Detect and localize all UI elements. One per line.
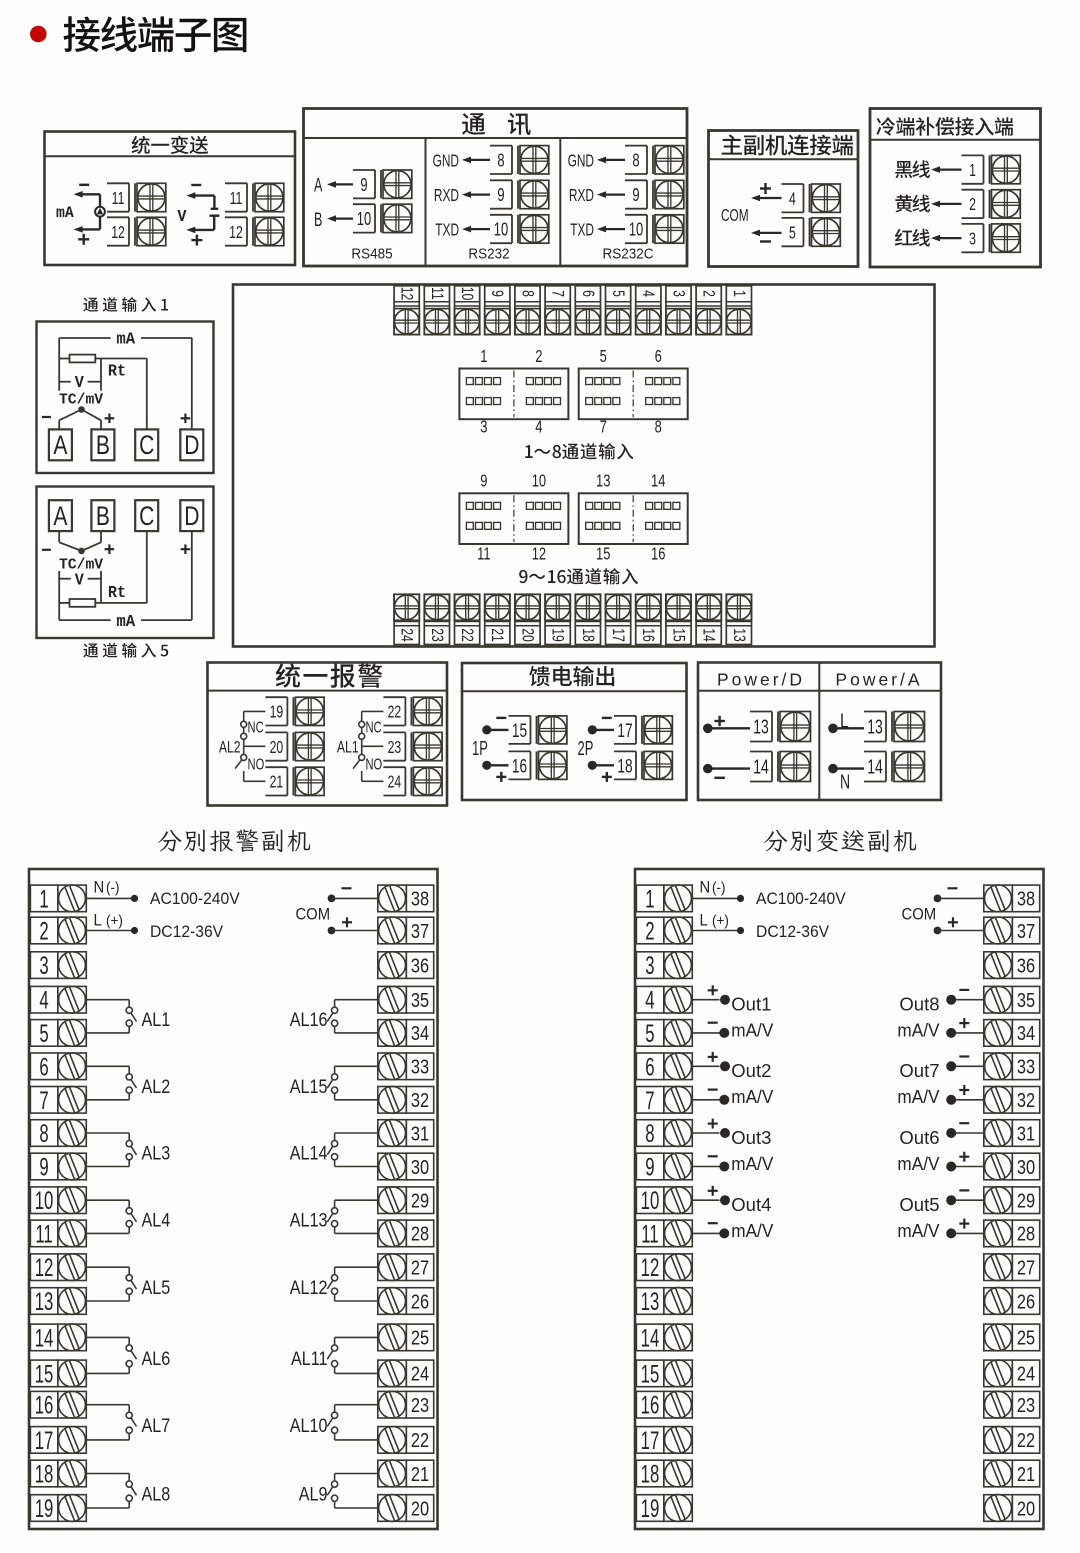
svg-text:27: 27 xyxy=(411,1256,429,1279)
svg-text:9: 9 xyxy=(39,1153,48,1181)
svg-text:NO: NO xyxy=(365,756,382,773)
svg-text:RXD: RXD xyxy=(434,186,459,206)
svg-text:Out8: Out8 xyxy=(899,994,939,1015)
svg-text:5: 5 xyxy=(608,290,626,297)
svg-text:15: 15 xyxy=(641,1360,660,1388)
svg-text:mA/V: mA/V xyxy=(731,1220,773,1241)
svg-text:4: 4 xyxy=(39,986,48,1014)
svg-text:33: 33 xyxy=(1017,1055,1035,1078)
svg-text:21: 21 xyxy=(411,1462,429,1485)
svg-text:1: 1 xyxy=(729,290,747,297)
svg-text:1: 1 xyxy=(39,885,48,913)
svg-text:RS485: RS485 xyxy=(351,246,392,263)
svg-text:mA/V: mA/V xyxy=(731,1153,773,1174)
svg-text:2P: 2P xyxy=(578,737,594,760)
svg-text:36: 36 xyxy=(1017,954,1035,977)
svg-text:TXD: TXD xyxy=(435,220,459,240)
svg-text:20: 20 xyxy=(1017,1497,1035,1520)
svg-text:B: B xyxy=(96,431,110,461)
svg-text:17: 17 xyxy=(617,720,632,742)
svg-text:(-): (-) xyxy=(106,880,119,897)
svg-text:6: 6 xyxy=(655,347,662,367)
svg-text:AL6: AL6 xyxy=(142,1348,171,1370)
svg-text:8: 8 xyxy=(518,290,536,297)
svg-text:7: 7 xyxy=(645,1086,654,1114)
svg-text:13: 13 xyxy=(596,472,611,492)
svg-text:16: 16 xyxy=(639,628,657,642)
svg-text:10: 10 xyxy=(35,1187,54,1215)
svg-text:5: 5 xyxy=(789,223,796,243)
svg-text:33: 33 xyxy=(411,1055,429,1078)
svg-text:9: 9 xyxy=(645,1153,654,1181)
svg-text:14: 14 xyxy=(651,472,666,492)
svg-text:mA: mA xyxy=(56,203,74,222)
svg-text:15: 15 xyxy=(596,545,611,565)
svg-text:7: 7 xyxy=(548,290,566,297)
svg-text:V: V xyxy=(75,373,85,392)
svg-text:DC12-36V: DC12-36V xyxy=(150,923,223,941)
svg-text:21: 21 xyxy=(1017,1462,1035,1485)
svg-text:A: A xyxy=(314,175,323,196)
svg-text:13: 13 xyxy=(641,1288,660,1316)
svg-text:GND: GND xyxy=(433,151,459,171)
svg-text:Out7: Out7 xyxy=(899,1060,939,1081)
svg-text:25: 25 xyxy=(411,1326,429,1349)
svg-text:24: 24 xyxy=(1017,1362,1035,1385)
svg-text:AL14: AL14 xyxy=(290,1142,328,1164)
svg-text:17: 17 xyxy=(641,1427,660,1455)
svg-text:13: 13 xyxy=(729,628,747,642)
svg-text:5: 5 xyxy=(600,347,607,367)
svg-text:7: 7 xyxy=(600,417,607,437)
svg-text:mA/V: mA/V xyxy=(897,1220,939,1241)
svg-text:AL7: AL7 xyxy=(142,1415,171,1437)
svg-text:AC100-240V: AC100-240V xyxy=(756,889,846,907)
svg-text:AL13: AL13 xyxy=(290,1209,328,1231)
svg-text:Rt: Rt xyxy=(108,362,126,381)
svg-text:14: 14 xyxy=(753,755,769,778)
svg-text:6: 6 xyxy=(578,290,596,297)
svg-text:1: 1 xyxy=(645,885,654,913)
svg-text:11: 11 xyxy=(427,287,445,300)
svg-text:AL9: AL9 xyxy=(299,1483,328,1505)
svg-text:32: 32 xyxy=(411,1089,429,1112)
svg-text:2: 2 xyxy=(969,195,976,215)
svg-text:19: 19 xyxy=(35,1495,54,1523)
svg-text:18: 18 xyxy=(617,755,632,777)
svg-text:A: A xyxy=(53,431,68,461)
svg-text:14: 14 xyxy=(641,1324,660,1352)
svg-text:26: 26 xyxy=(411,1290,429,1313)
svg-text:Out3: Out3 xyxy=(731,1127,771,1148)
svg-text:TC/mV: TC/mV xyxy=(59,392,103,408)
svg-text:COM: COM xyxy=(721,206,749,226)
svg-text:10: 10 xyxy=(532,472,547,492)
svg-text:38: 38 xyxy=(411,887,429,910)
svg-text:23: 23 xyxy=(388,738,402,758)
svg-text:Out2: Out2 xyxy=(731,1060,771,1081)
svg-text:4: 4 xyxy=(789,189,796,209)
svg-text:COM: COM xyxy=(902,906,937,924)
svg-text:AL3: AL3 xyxy=(142,1142,171,1164)
svg-text:D: D xyxy=(184,501,199,531)
svg-text:6: 6 xyxy=(39,1053,48,1081)
svg-text:3: 3 xyxy=(645,952,654,980)
svg-text:L: L xyxy=(94,912,103,930)
svg-text:AL5: AL5 xyxy=(142,1277,171,1299)
svg-text:19: 19 xyxy=(641,1495,660,1523)
svg-text:20: 20 xyxy=(518,628,536,642)
svg-text:22: 22 xyxy=(1017,1429,1035,1452)
svg-text:8: 8 xyxy=(632,151,639,171)
svg-text:12: 12 xyxy=(229,223,243,243)
svg-text:8: 8 xyxy=(655,417,662,437)
svg-text:RXD: RXD xyxy=(569,186,594,206)
svg-text:20: 20 xyxy=(270,738,284,758)
svg-text:13: 13 xyxy=(35,1288,54,1316)
svg-text:14: 14 xyxy=(35,1324,54,1352)
svg-text:N: N xyxy=(840,770,850,793)
svg-text:16: 16 xyxy=(35,1391,54,1419)
svg-text:B: B xyxy=(314,209,322,230)
svg-text:2: 2 xyxy=(535,347,542,367)
svg-text:28: 28 xyxy=(411,1222,429,1245)
svg-text:(+): (+) xyxy=(712,913,729,930)
svg-text:14: 14 xyxy=(867,755,883,778)
svg-text:V: V xyxy=(177,207,187,226)
svg-text:14: 14 xyxy=(699,628,717,642)
svg-text:10: 10 xyxy=(629,221,643,241)
svg-text:12: 12 xyxy=(111,223,125,243)
svg-text:mA: mA xyxy=(116,611,135,631)
svg-text:1: 1 xyxy=(969,161,976,181)
svg-text:mA/V: mA/V xyxy=(897,1153,939,1174)
svg-text:mA/V: mA/V xyxy=(731,1020,773,1041)
svg-text:11: 11 xyxy=(641,1220,658,1248)
svg-text:2: 2 xyxy=(645,917,654,945)
svg-text:D: D xyxy=(184,431,199,461)
svg-text:23: 23 xyxy=(1017,1393,1035,1416)
svg-text:AL8: AL8 xyxy=(142,1483,171,1505)
svg-text:25: 25 xyxy=(1017,1326,1035,1349)
svg-text:8: 8 xyxy=(645,1120,654,1148)
svg-text:16: 16 xyxy=(651,545,666,565)
svg-text:NO: NO xyxy=(248,756,265,773)
svg-text:22: 22 xyxy=(411,1429,429,1452)
svg-text:3: 3 xyxy=(39,952,48,980)
svg-text:Out1: Out1 xyxy=(731,994,771,1015)
svg-text:Rt: Rt xyxy=(108,583,126,602)
svg-text:31: 31 xyxy=(1017,1122,1035,1145)
svg-text:34: 34 xyxy=(1017,1022,1035,1045)
svg-text:5: 5 xyxy=(645,1020,654,1048)
svg-text:18: 18 xyxy=(641,1460,660,1488)
svg-text:Out4: Out4 xyxy=(731,1194,771,1215)
svg-text:10: 10 xyxy=(457,287,475,301)
svg-text:AL2: AL2 xyxy=(142,1076,171,1098)
svg-text:12: 12 xyxy=(532,545,546,565)
svg-text:TXD: TXD xyxy=(570,220,594,240)
svg-text:2: 2 xyxy=(699,290,717,297)
svg-text:30: 30 xyxy=(411,1155,429,1178)
svg-text:12: 12 xyxy=(397,287,415,301)
svg-text:18: 18 xyxy=(35,1460,54,1488)
svg-text:22: 22 xyxy=(457,628,475,642)
svg-text:11: 11 xyxy=(112,189,125,209)
svg-text:32: 32 xyxy=(1017,1089,1035,1112)
svg-text:8: 8 xyxy=(497,151,504,171)
svg-text:C: C xyxy=(139,431,154,461)
svg-text:AL12: AL12 xyxy=(290,1277,328,1299)
svg-text:1P: 1P xyxy=(472,737,488,760)
svg-text:34: 34 xyxy=(411,1022,429,1045)
svg-text:16: 16 xyxy=(641,1391,660,1419)
svg-text:13: 13 xyxy=(753,715,769,738)
svg-text:29: 29 xyxy=(1017,1189,1035,1212)
svg-text:35: 35 xyxy=(1017,988,1035,1011)
svg-text:mA/V: mA/V xyxy=(897,1087,939,1108)
svg-text:RS232: RS232 xyxy=(468,246,509,263)
svg-text:Power/D: Power/D xyxy=(717,669,805,689)
svg-text:AL1: AL1 xyxy=(337,739,359,757)
svg-text:11: 11 xyxy=(477,545,490,565)
svg-text:mA/V: mA/V xyxy=(897,1020,939,1041)
svg-text:13: 13 xyxy=(867,715,883,738)
svg-text:(+): (+) xyxy=(106,913,123,930)
svg-text:19: 19 xyxy=(548,628,566,642)
svg-text:AL2: AL2 xyxy=(219,739,241,757)
svg-text:9: 9 xyxy=(480,472,487,492)
svg-text:3: 3 xyxy=(969,229,976,249)
svg-text:AL10: AL10 xyxy=(290,1415,328,1437)
svg-text:37: 37 xyxy=(411,919,429,942)
svg-text:27: 27 xyxy=(1017,1256,1035,1279)
svg-text:24: 24 xyxy=(411,1362,429,1385)
svg-text:30: 30 xyxy=(1017,1155,1035,1178)
svg-text:2: 2 xyxy=(39,917,48,945)
svg-text:AL16: AL16 xyxy=(290,1009,328,1031)
svg-text:37: 37 xyxy=(1017,919,1035,942)
svg-text:12: 12 xyxy=(641,1254,660,1282)
svg-text:23: 23 xyxy=(411,1393,429,1416)
svg-text:L: L xyxy=(699,912,708,930)
svg-text:mA/V: mA/V xyxy=(731,1087,773,1108)
svg-text:4: 4 xyxy=(645,986,654,1014)
svg-text:18: 18 xyxy=(578,628,596,642)
svg-text:9: 9 xyxy=(360,176,367,196)
svg-text:AL11: AL11 xyxy=(291,1348,328,1370)
svg-text:AL1: AL1 xyxy=(142,1009,171,1031)
svg-text:N: N xyxy=(699,879,710,897)
svg-text:16: 16 xyxy=(512,755,527,777)
svg-text:N: N xyxy=(94,879,105,897)
svg-text:NC: NC xyxy=(365,719,381,736)
svg-text:B: B xyxy=(96,501,110,531)
svg-text:11: 11 xyxy=(35,1220,52,1248)
svg-text:31: 31 xyxy=(411,1122,429,1145)
svg-text:28: 28 xyxy=(1017,1222,1035,1245)
svg-text:COM: COM xyxy=(295,906,330,924)
svg-text:24: 24 xyxy=(388,773,402,793)
svg-text:20: 20 xyxy=(411,1497,429,1520)
svg-text:4: 4 xyxy=(639,290,657,297)
svg-text:AC100-240V: AC100-240V xyxy=(150,889,240,907)
svg-text:NC: NC xyxy=(248,719,264,736)
svg-text:10: 10 xyxy=(641,1187,660,1215)
svg-text:C: C xyxy=(139,501,154,531)
svg-text:29: 29 xyxy=(411,1189,429,1212)
svg-text:36: 36 xyxy=(411,954,429,977)
svg-text:21: 21 xyxy=(488,628,506,642)
svg-text:RS232C: RS232C xyxy=(603,246,654,263)
svg-text:(-): (-) xyxy=(712,880,725,897)
svg-text:17: 17 xyxy=(35,1427,54,1455)
svg-text:9: 9 xyxy=(488,290,506,297)
svg-text:AL15: AL15 xyxy=(290,1076,328,1098)
svg-text:35: 35 xyxy=(411,988,429,1011)
svg-text:22: 22 xyxy=(388,703,402,723)
svg-text:24: 24 xyxy=(397,628,415,642)
svg-text:12: 12 xyxy=(35,1254,54,1282)
svg-text:38: 38 xyxy=(1017,887,1035,910)
svg-text:17: 17 xyxy=(608,628,626,642)
svg-text:15: 15 xyxy=(669,628,687,642)
svg-text:3: 3 xyxy=(480,417,487,437)
svg-text:21: 21 xyxy=(270,773,284,793)
svg-text:7: 7 xyxy=(39,1086,48,1114)
svg-text:3: 3 xyxy=(669,290,687,297)
svg-text:6: 6 xyxy=(645,1053,654,1081)
svg-text:15: 15 xyxy=(512,720,527,742)
svg-text:GND: GND xyxy=(568,151,594,171)
svg-text:4: 4 xyxy=(535,417,542,437)
svg-text:10: 10 xyxy=(494,221,508,241)
svg-text:mA: mA xyxy=(116,329,135,349)
svg-text:23: 23 xyxy=(427,628,445,642)
svg-text:DC12-36V: DC12-36V xyxy=(756,923,829,941)
svg-text:10: 10 xyxy=(357,210,371,230)
svg-text:1: 1 xyxy=(480,347,487,367)
svg-text:AL4: AL4 xyxy=(142,1209,171,1231)
svg-text:A: A xyxy=(53,501,68,531)
svg-text:5: 5 xyxy=(39,1020,48,1048)
svg-text:11: 11 xyxy=(230,189,243,209)
svg-text:Power/A: Power/A xyxy=(835,669,922,689)
svg-text:Out6: Out6 xyxy=(899,1127,939,1148)
svg-text:9: 9 xyxy=(497,186,504,206)
svg-text:Out5: Out5 xyxy=(899,1194,939,1215)
svg-text:26: 26 xyxy=(1017,1290,1035,1313)
svg-text:15: 15 xyxy=(35,1360,54,1388)
svg-text:V: V xyxy=(75,571,85,590)
svg-text:8: 8 xyxy=(39,1120,48,1148)
svg-text:9: 9 xyxy=(632,186,639,206)
svg-text:19: 19 xyxy=(270,703,284,723)
